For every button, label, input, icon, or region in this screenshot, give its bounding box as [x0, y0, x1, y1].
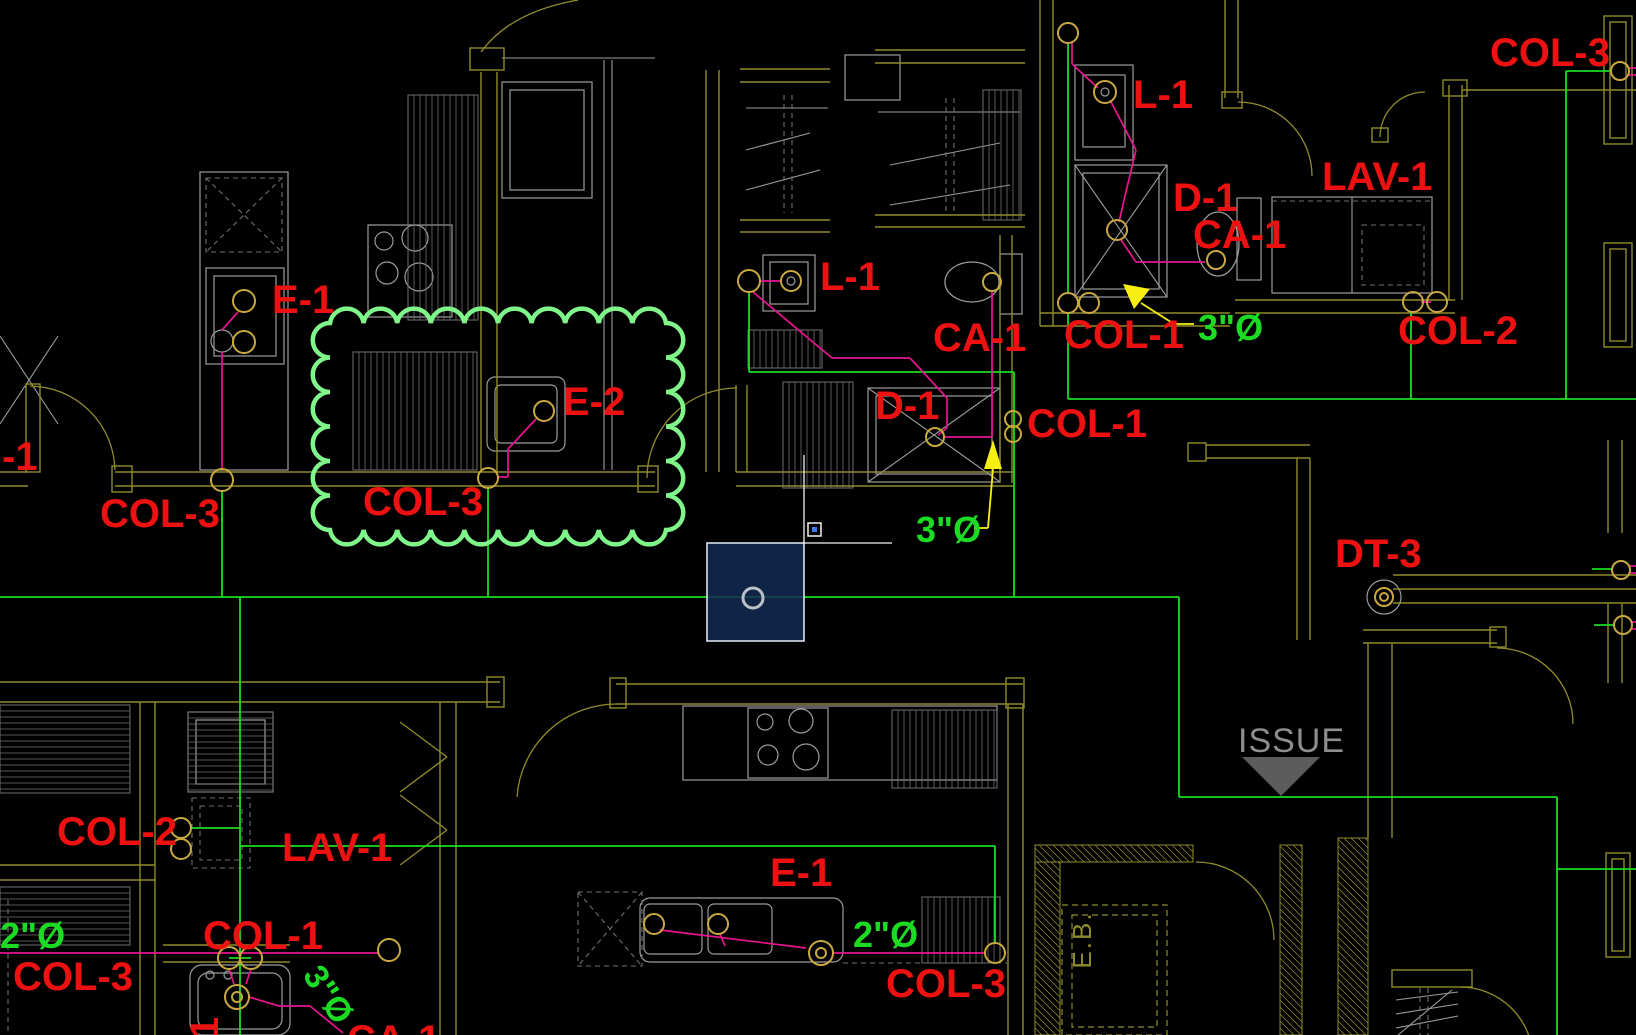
hatch-diagonal [1280, 845, 1302, 1035]
hatch-line [1158, 845, 1175, 862]
hatch-line [1116, 845, 1133, 862]
door-swing-arc [1238, 102, 1312, 176]
waste-pipe-magenta [249, 997, 279, 1006]
waste-pipe-magenta [246, 969, 251, 984]
hatch-line [1280, 881, 1302, 903]
hatch-line [1280, 874, 1302, 896]
hatch-line [1035, 1021, 1049, 1035]
hatch-line [1035, 923, 1060, 948]
pipe-connector-circle [1079, 293, 1099, 313]
hatch-line [1286, 845, 1302, 861]
hatch-line [1035, 888, 1060, 913]
hatch-horizontal [0, 705, 130, 793]
cad-label: -1 [2, 435, 38, 479]
cad-label: COL-3 [886, 962, 1006, 1006]
pipe-connector-circle [1614, 616, 1632, 634]
fixture-outline [708, 904, 772, 954]
selection-window[interactable] [707, 543, 804, 641]
hatch-line [1344, 838, 1368, 862]
cad-label: L-1 [1133, 73, 1193, 117]
hatch-diagonal [1338, 838, 1368, 1035]
hatch-line [1338, 1028, 1345, 1035]
fixture-circle [405, 263, 433, 291]
hatch-line [1035, 902, 1060, 927]
pipe-connector-circle [534, 401, 554, 421]
pipe-connector-circle [644, 914, 664, 934]
cad-label: 3"Ø [1198, 307, 1263, 348]
fixture-outline [502, 82, 592, 198]
hatch-line [1280, 986, 1302, 1008]
wall-pilaster [470, 48, 504, 70]
wall-pilaster [1443, 80, 1467, 96]
hatch-line [1280, 944, 1302, 966]
hatch-line [1035, 1028, 1042, 1035]
toilet-bowl [945, 262, 999, 302]
hatch-line [1280, 916, 1302, 938]
pipe-connector-circle [816, 948, 826, 958]
fixture-line [890, 185, 1010, 205]
fixture-circle [789, 709, 813, 733]
hatch-line [1035, 916, 1060, 941]
hatch-line [1035, 951, 1060, 976]
hatch-line [1280, 867, 1302, 889]
pipe-connector-circle [1380, 593, 1388, 601]
cad-label: CA-1 [347, 1018, 440, 1035]
hatch-vertical [408, 95, 478, 320]
pipe-connector-circle [708, 914, 728, 934]
cad-label: L-1 [820, 255, 880, 299]
pipe-connector-circle [781, 271, 801, 291]
hatch-line [1035, 958, 1060, 983]
hatch-border [1035, 845, 1193, 862]
hatch-vertical [353, 352, 477, 470]
hatch-line [1035, 881, 1060, 906]
cad-label: COL-1 [1027, 402, 1147, 446]
hatch-line [1035, 979, 1060, 1004]
wall-pilaster [1604, 243, 1632, 347]
door-swing-arc [481, 0, 578, 52]
selection-overlay[interactable] [707, 455, 892, 641]
cad-label: 3"Ø [916, 509, 981, 550]
hatch-line [1039, 845, 1056, 862]
hatch-line [1351, 838, 1368, 855]
issue-stamp-text: ISSUE [1238, 722, 1345, 760]
hatch-line [1338, 1007, 1366, 1035]
hatch-border [892, 710, 997, 788]
wall-pilaster [1188, 443, 1206, 461]
cad-label: CA-1 [933, 316, 1026, 360]
hatch-border [353, 352, 477, 470]
pipe-connector-circle [1058, 293, 1078, 313]
fixture-outline [214, 276, 276, 356]
cad-label: LAV-1 [282, 826, 392, 870]
door-swing-arc [1497, 648, 1573, 724]
cad-label: COL-3 [100, 492, 220, 536]
hatch-border [408, 95, 478, 320]
fixture-circle [758, 745, 778, 765]
pipe-connector-circle [738, 270, 760, 292]
cad-label: COL-2 [57, 810, 177, 854]
cad-viewport[interactable]: COL-3L-1D-1CA-1LAV-1L-1CA-1COL-1COL-23"Ø… [0, 0, 1636, 1035]
hatch-line [1035, 1000, 1060, 1025]
hatch-line [1179, 845, 1193, 859]
toilet-tank [1000, 254, 1022, 314]
hatch-line [1130, 845, 1147, 862]
pipe-connector-circle [233, 331, 255, 353]
hatch-line [1035, 909, 1060, 934]
hatch-line [1035, 937, 1060, 962]
cad-label: COL-2 [1398, 309, 1518, 353]
pipe-connector-circle [1375, 588, 1393, 606]
fixture-dashed-rect [1362, 225, 1424, 285]
door-swing-arc [1460, 987, 1533, 1035]
hatch-line [1186, 845, 1193, 852]
cad-label: COL-1 [1064, 313, 1184, 357]
hatch-line [1102, 845, 1119, 862]
hatch-line [1067, 845, 1084, 862]
fixture-dashed-rect [200, 806, 242, 860]
pipe-connector-circle [983, 273, 1001, 291]
cad-label: E-1 [183, 1017, 227, 1035]
hatch-border [0, 705, 130, 793]
door-swing-arc [30, 386, 115, 470]
door-swing-arc [647, 388, 737, 478]
fixture-circle [1367, 580, 1401, 614]
hatch-line [1035, 986, 1060, 1011]
pipe-connector-circle [1005, 426, 1021, 442]
fixture-outline [1083, 75, 1125, 147]
hatch-line [1074, 845, 1091, 862]
hatch-vertical [748, 330, 822, 368]
hatch-line [1280, 958, 1302, 980]
fixture-circle [757, 714, 773, 730]
hatch-line [1051, 862, 1060, 871]
hatch-line [1280, 993, 1302, 1015]
hatch-line [1088, 845, 1105, 862]
pipe-connector-circle [1058, 23, 1078, 43]
hatch-line [1060, 845, 1077, 862]
waste-pipe-magenta [1121, 240, 1136, 262]
waste-pipe-magenta [1124, 150, 1136, 200]
hatch-diagonal [1035, 862, 1060, 1035]
fixture-circle [402, 225, 428, 251]
hatch-line [1035, 972, 1060, 997]
fixture-circle [375, 232, 393, 250]
fixture-outline [495, 385, 557, 443]
waste-pipe-magenta [720, 934, 725, 946]
leader-line-yellow [988, 469, 993, 528]
hatch-line [1280, 888, 1302, 910]
waste-pipe-magenta [508, 419, 536, 449]
hatch-line [1280, 930, 1302, 952]
hatch-line [1035, 965, 1060, 990]
fixture-outline [770, 262, 808, 304]
wall-pilaster [1610, 249, 1626, 341]
fixture-line [746, 133, 810, 150]
hatch-line [1280, 972, 1302, 994]
cad-label: E.B. [1067, 911, 1097, 968]
hatch-line [1035, 930, 1060, 955]
hatch-vertical [983, 90, 1021, 220]
door-swing-arc [517, 704, 617, 797]
waste-pipe-magenta [660, 930, 806, 948]
hatch-line [1280, 923, 1302, 945]
fixture-dashed-rect [192, 798, 250, 868]
hatch-line [1280, 846, 1302, 868]
hatch-line [1280, 1021, 1294, 1035]
cad-label: CA-1 [1193, 213, 1286, 257]
fixture-outline [510, 90, 584, 190]
fixture-outline [640, 898, 843, 962]
cad-label: DT-3 [1335, 532, 1422, 576]
hatch-line [1338, 1021, 1352, 1035]
fixture-circle [787, 277, 795, 285]
hatch-line [1280, 853, 1302, 875]
wall-pilaster [1392, 970, 1472, 987]
hatch-line [1035, 874, 1060, 899]
cad-label: COL-3 [363, 480, 483, 524]
fixture-outline [845, 55, 900, 100]
hatch-line [1035, 1007, 1060, 1032]
waste-pipe-magenta [1072, 64, 1098, 88]
hatch-line [1035, 848, 1049, 862]
fixture-circle [206, 971, 214, 979]
waste-pipe-magenta [753, 292, 832, 358]
cad-label: D-1 [875, 384, 939, 428]
hatch-line [1293, 845, 1302, 854]
hatch-line [1165, 845, 1182, 862]
hatch-line [1081, 845, 1098, 862]
door-swing-arc [1380, 92, 1425, 137]
cad-label: 2"Ø [0, 915, 65, 956]
cad-label: COL-3 [1490, 31, 1610, 75]
hatch-line [1280, 909, 1302, 931]
cad-label: COL-3 [13, 955, 133, 999]
hatch-line [1044, 862, 1060, 878]
fixture-outline [368, 225, 452, 317]
hatch-line [1053, 845, 1070, 862]
pipe-connector-circle [926, 428, 944, 446]
hatch-line [1035, 944, 1060, 969]
hatch-line [1144, 845, 1161, 862]
pipe-connector-circle [233, 290, 255, 312]
hatch-line [1123, 845, 1140, 862]
issue-stamp: ISSUE [1238, 722, 1345, 796]
fixture-circle [376, 262, 398, 284]
cad-label: E-1 [770, 851, 832, 895]
fixture-line [1396, 1004, 1458, 1014]
hatch-line [1035, 895, 1060, 920]
cad-label: LAV-1 [1322, 155, 1432, 199]
waste-pipe-magenta [222, 312, 238, 330]
issue-stamp-triangle [1242, 757, 1320, 796]
hatch-line [1280, 951, 1302, 973]
hatch-line [1280, 902, 1302, 924]
cad-label: E-2 [563, 380, 625, 424]
waste-pipe-magenta [1119, 200, 1124, 222]
pipe-connector-circle [378, 939, 400, 961]
hatch-vertical [892, 710, 997, 788]
grip-point-fill [812, 527, 817, 532]
pipe-connector-circle [225, 985, 249, 1009]
hatch-line [1280, 1000, 1302, 1022]
hatch-line [1035, 855, 1042, 862]
fixture-outline [644, 904, 702, 954]
fixture-circle [1101, 88, 1109, 96]
wall-pilaster [1612, 859, 1624, 951]
hatch-line [1046, 845, 1063, 862]
hatch-line [1280, 979, 1302, 1001]
hatch-horizontal [188, 712, 273, 792]
pipe-connector-circle [1005, 411, 1021, 427]
cad-label: E-1 [272, 278, 334, 322]
fixture-outline [1075, 65, 1133, 160]
door-swing-arc [1196, 862, 1274, 940]
hatch-border [748, 330, 822, 368]
pipe-connector-circle [1612, 561, 1630, 579]
hatch-line [1137, 845, 1154, 862]
hatch-line [1280, 1028, 1287, 1035]
hatch-line [1095, 845, 1112, 862]
hatch-line [1035, 867, 1060, 892]
fixture-outline [763, 255, 815, 311]
hatch-line [1035, 993, 1060, 1018]
hatch-diagonal [1035, 845, 1193, 862]
fixture-outline [748, 708, 828, 778]
hatch-line [1280, 965, 1302, 987]
fixture-line [746, 170, 820, 190]
hatch-line [1280, 860, 1302, 882]
hatch-line [1151, 845, 1168, 862]
cad-canvas[interactable]: COL-3L-1D-1CA-1LAV-1L-1CA-1COL-1COL-23"Ø… [0, 0, 1636, 1035]
hatch-line [1037, 862, 1060, 885]
hatch-line [1280, 1007, 1302, 1029]
hatch-line [1280, 937, 1302, 959]
fixture-line [1396, 1016, 1458, 1028]
cad-label: COL-1 [203, 914, 323, 958]
fixture-outline [683, 706, 997, 780]
hatch-line [1109, 845, 1126, 862]
waste-pipe-magenta [229, 969, 234, 984]
hatch-line [1280, 895, 1302, 917]
fixture-circle [793, 744, 819, 770]
hatch-line [1172, 845, 1189, 862]
cad-label: 2"Ø [853, 914, 918, 955]
pipe-connector-circle [1094, 81, 1116, 103]
